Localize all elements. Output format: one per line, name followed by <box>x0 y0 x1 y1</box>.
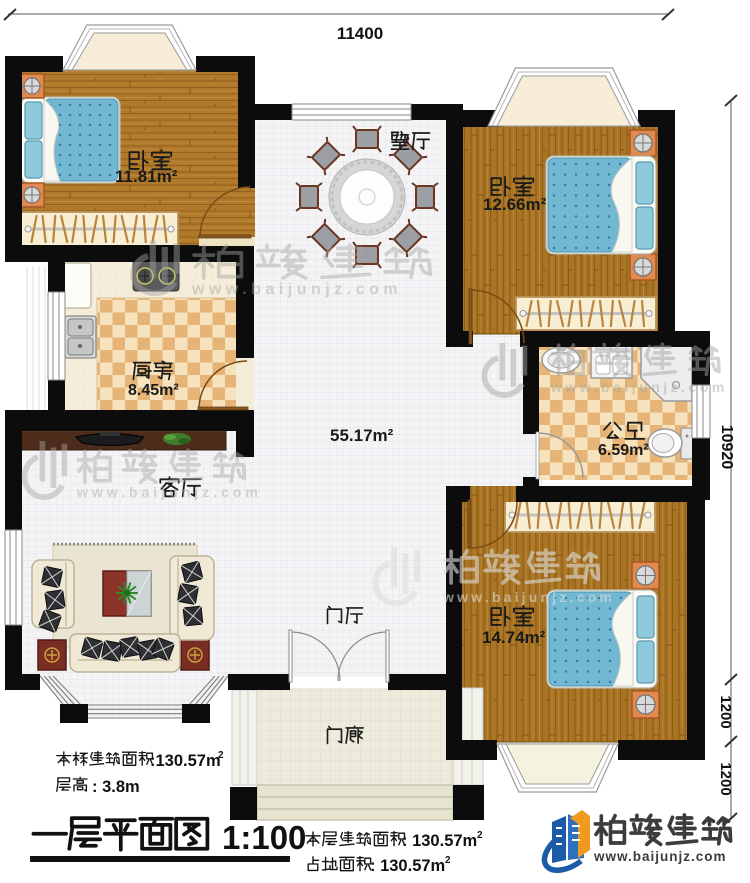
svg-text:10920: 10920 <box>718 425 735 470</box>
svg-text:14.74m²: 14.74m² <box>482 628 546 647</box>
svg-text:www.baijunjz.com: www.baijunjz.com <box>442 589 615 605</box>
svg-text:2: 2 <box>445 855 451 866</box>
svg-text:1:100: 1:100 <box>222 819 306 856</box>
svg-text:www.baijunjz.com: www.baijunjz.com <box>593 849 727 864</box>
svg-text:6.59m²: 6.59m² <box>598 442 649 459</box>
svg-text::130.57m: :130.57m <box>150 752 221 770</box>
svg-text:11400: 11400 <box>337 24 383 43</box>
svg-text:55.17m²: 55.17m² <box>330 426 394 445</box>
svg-text:www.baijunjz.com: www.baijunjz.com <box>191 281 402 298</box>
svg-text:: 130.57m: : 130.57m <box>370 857 445 875</box>
svg-text:2: 2 <box>477 830 483 841</box>
svg-text:: 3.8m: : 3.8m <box>92 778 140 796</box>
svg-text:1200: 1200 <box>717 762 734 795</box>
svg-text:www.baijunjz.com: www.baijunjz.com <box>550 379 728 395</box>
svg-text:www.baijunjz.com: www.baijunjz.com <box>76 484 262 500</box>
svg-text:11.81m²: 11.81m² <box>115 167 178 186</box>
svg-text:2: 2 <box>218 750 224 761</box>
svg-text:8.45m²: 8.45m² <box>128 382 179 399</box>
svg-text:1200: 1200 <box>717 695 734 728</box>
svg-text:: 130.57m: : 130.57m <box>402 832 477 850</box>
svg-text:12.66m²: 12.66m² <box>483 195 547 214</box>
